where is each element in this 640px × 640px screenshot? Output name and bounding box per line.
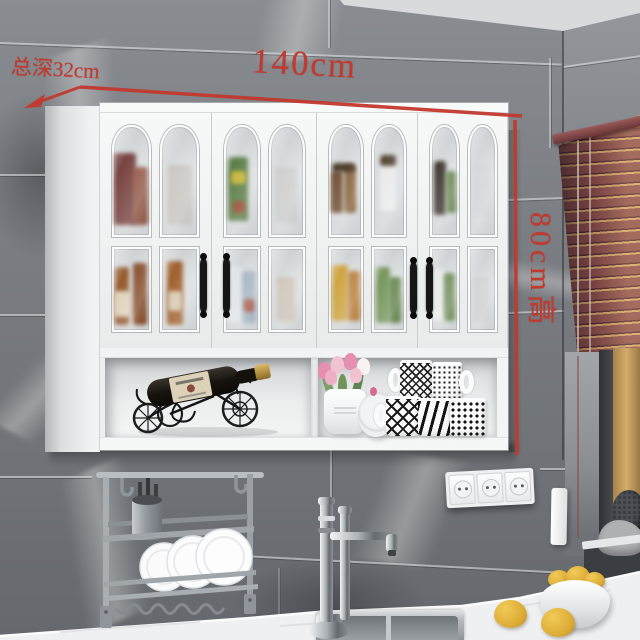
- glass-pane: [269, 125, 305, 237]
- mug-handle: [459, 370, 474, 394]
- product-photo: 总深32cm 140cm 80cm高: [0, 0, 640, 640]
- glass-pane: [160, 125, 199, 237]
- patterned-mug: [400, 360, 432, 400]
- fruit: [494, 600, 527, 628]
- patterned-mug: [450, 398, 486, 436]
- outlet-socket: [504, 471, 532, 502]
- glass-pane: [112, 125, 151, 237]
- glass-pane: [224, 125, 260, 237]
- hanging-cord: [577, 356, 579, 538]
- door-handle: [223, 258, 230, 313]
- tile-grout: [0, 314, 46, 316]
- door-handle: [426, 262, 433, 314]
- width-dimension-label: 140cm: [251, 41, 358, 86]
- glass-pane: [329, 247, 363, 332]
- cabinet-top-rail: [100, 103, 508, 113]
- glass-pane: [112, 247, 151, 332]
- outlet-socket: [476, 472, 504, 503]
- outlet-socket: [448, 474, 476, 505]
- glass-pane: [329, 125, 363, 237]
- fruit: [541, 608, 575, 637]
- tile-grout: [549, 58, 551, 148]
- patterned-mug: [432, 362, 462, 400]
- lid-clip: [370, 387, 377, 396]
- window-reveal: [565, 352, 601, 556]
- dish-rack: [88, 460, 272, 640]
- glass-pane: [430, 125, 459, 237]
- pot-label-line: [334, 407, 356, 409]
- shelf-right-stile: [497, 358, 508, 437]
- socket-recess: [454, 480, 473, 499]
- cabinet-side-panel: [45, 106, 100, 452]
- socket-hole: [493, 486, 496, 489]
- glass-pane: [430, 247, 459, 332]
- height-dimension-label: 80cm高: [522, 212, 566, 362]
- pot-label-line: [334, 412, 356, 414]
- socket-recess: [482, 478, 501, 497]
- tile-grout: [540, 468, 566, 470]
- triple-power-outlet: [445, 468, 535, 509]
- tulip: [325, 370, 337, 385]
- ceiling: [0, 0, 640, 40]
- glass-pane: [372, 247, 406, 332]
- door-handle: [410, 262, 417, 314]
- zebra-mug: [418, 398, 452, 436]
- tile-grout: [0, 174, 46, 176]
- glass-pane: [468, 247, 497, 332]
- patterned-mug: [386, 396, 420, 436]
- light-switch-panel: [551, 488, 568, 545]
- depth-dimension-label: 总深32cm: [10, 51, 100, 86]
- tulip: [350, 368, 362, 383]
- tile-grout: [0, 476, 92, 478]
- glass-pane: [269, 247, 305, 332]
- glass-pane: [160, 247, 199, 332]
- glass-pane: [372, 125, 406, 237]
- door-handle: [200, 258, 207, 313]
- socket-hole: [458, 488, 461, 491]
- faucet: [302, 492, 408, 640]
- cabinet-doors: [100, 113, 508, 348]
- bicycle-wine-rack: [118, 352, 298, 440]
- socket-hole: [514, 485, 517, 488]
- blinds-cord: [589, 136, 591, 360]
- cabinet-side-shadow: [508, 130, 522, 452]
- socket-recess: [510, 477, 529, 496]
- glass-pane: [468, 125, 497, 237]
- cabinet-door-3: [316, 113, 417, 348]
- cabinet-door-1: [100, 113, 211, 348]
- blinds-cord: [577, 140, 579, 360]
